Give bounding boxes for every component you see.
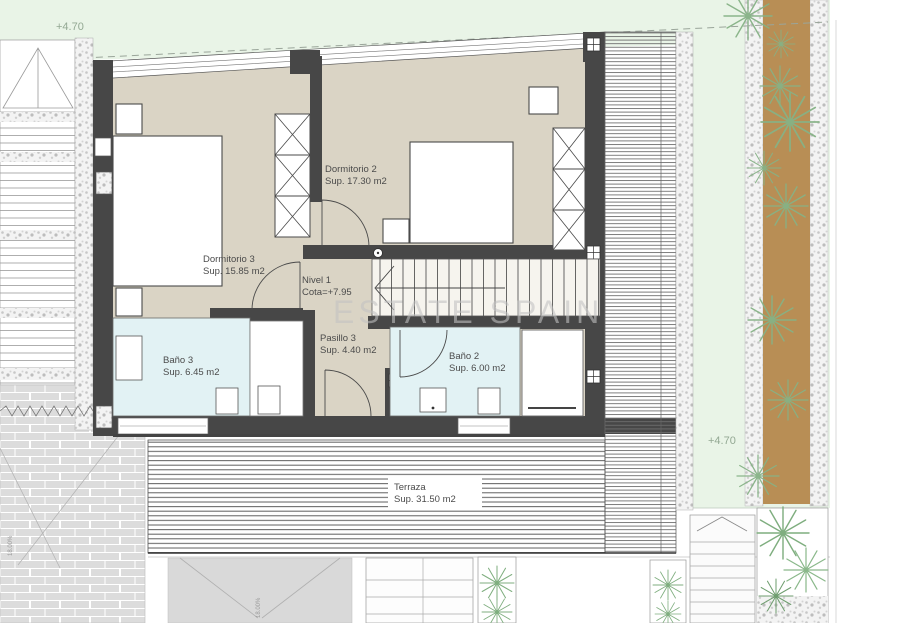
planter-2: [650, 560, 686, 623]
lower-ramp: 18.00%: [168, 558, 352, 623]
label-bano3-name: Baño 3: [163, 355, 193, 366]
floor-plan-page: 18.00%: [0, 0, 903, 623]
label-dormitorio3-name: Dormitorio 3: [203, 254, 255, 265]
right-louver-deck: [605, 32, 693, 553]
floor-plan-drawing: 18.00%: [0, 0, 903, 623]
ramp-left-label: 18.00%: [8, 535, 14, 556]
planter-1: [478, 557, 516, 623]
label-dormitorio2-area: Sup. 17.30 m2: [325, 176, 387, 187]
label-dormitorio3-area: Sup. 15.85 m2: [203, 266, 265, 277]
vestibule: [250, 321, 303, 416]
nightstand: [116, 104, 142, 134]
label-pasillo3-name: Pasillo 3: [320, 333, 356, 344]
wardrobe-dormitorio3: [275, 114, 310, 237]
label-bano3-area: Sup. 6.45 m2: [163, 367, 220, 378]
level-marker-right: +4.70: [708, 435, 736, 447]
dresser: [529, 87, 558, 114]
nightstand: [383, 219, 409, 243]
bed-dormitorio2: [410, 142, 513, 243]
garden-path: [745, 0, 828, 506]
watermark: ESTATE SPAIN: [333, 294, 603, 330]
left-pergola: [0, 40, 75, 385]
label-terraza-name: Terraza: [394, 482, 426, 493]
nightstand: [116, 288, 142, 316]
label-nivel1-name: Nivel 1: [302, 275, 331, 286]
garden-stairs: [690, 515, 755, 623]
ramp-center-label: 18.00%: [256, 597, 262, 618]
label-terraza-area: Sup. 31.50 m2: [394, 494, 456, 505]
wardrobe-dormitorio2: [553, 128, 585, 250]
shower-closet: [522, 330, 583, 416]
label-bano2-area: Sup. 6.00 m2: [449, 363, 506, 374]
entry-steps: [366, 558, 473, 623]
label-dormitorio2-name: Dormitorio 2: [325, 164, 377, 175]
level-marker-top-left: +4.70: [56, 21, 84, 33]
gravel-strip-left: [75, 38, 93, 430]
garden-bed: [757, 507, 828, 623]
label-pasillo3-area: Sup. 4.40 m2: [320, 345, 377, 356]
label-bano2-name: Baño 2: [449, 351, 479, 362]
